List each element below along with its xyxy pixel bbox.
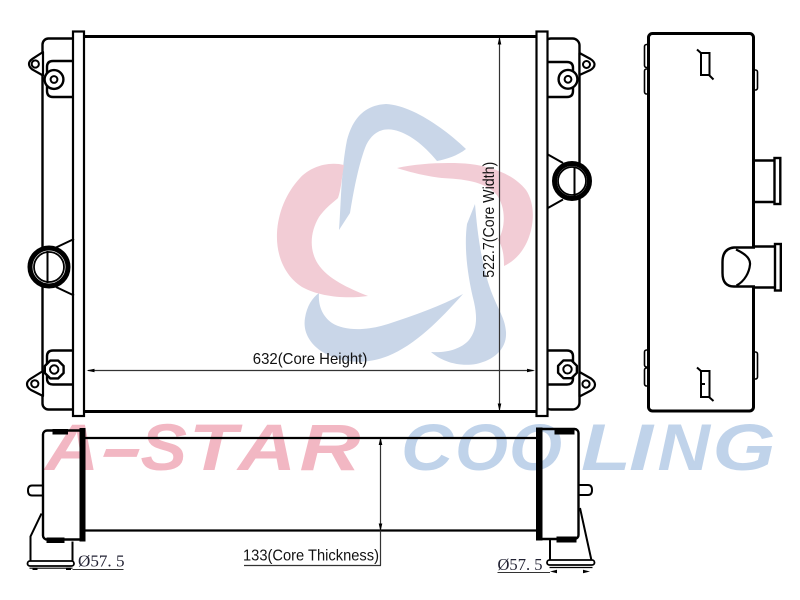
- svg-text:O: O: [509, 410, 562, 484]
- svg-text:133(Core Thickness): 133(Core Thickness): [243, 548, 379, 565]
- svg-text:R: R: [300, 410, 361, 484]
- svg-text:632(Core Height): 632(Core Height): [253, 351, 367, 368]
- svg-text:I: I: [629, 410, 655, 484]
- svg-text:T: T: [189, 410, 243, 484]
- svg-text:C: C: [401, 410, 454, 484]
- svg-text:A: A: [236, 410, 296, 484]
- svg-text:Ø57. 5: Ø57. 5: [498, 555, 543, 574]
- svg-text:522.7(Core Width): 522.7(Core Width): [481, 162, 498, 278]
- svg-text:S: S: [141, 410, 188, 484]
- svg-text:L: L: [581, 410, 631, 484]
- svg-text:A: A: [43, 410, 99, 484]
- svg-text:Ø57. 5: Ø57. 5: [78, 552, 125, 571]
- svg-text:N: N: [658, 410, 712, 484]
- svg-text:-: -: [100, 410, 144, 484]
- svg-text:G: G: [713, 410, 776, 484]
- svg-text:O: O: [455, 410, 508, 484]
